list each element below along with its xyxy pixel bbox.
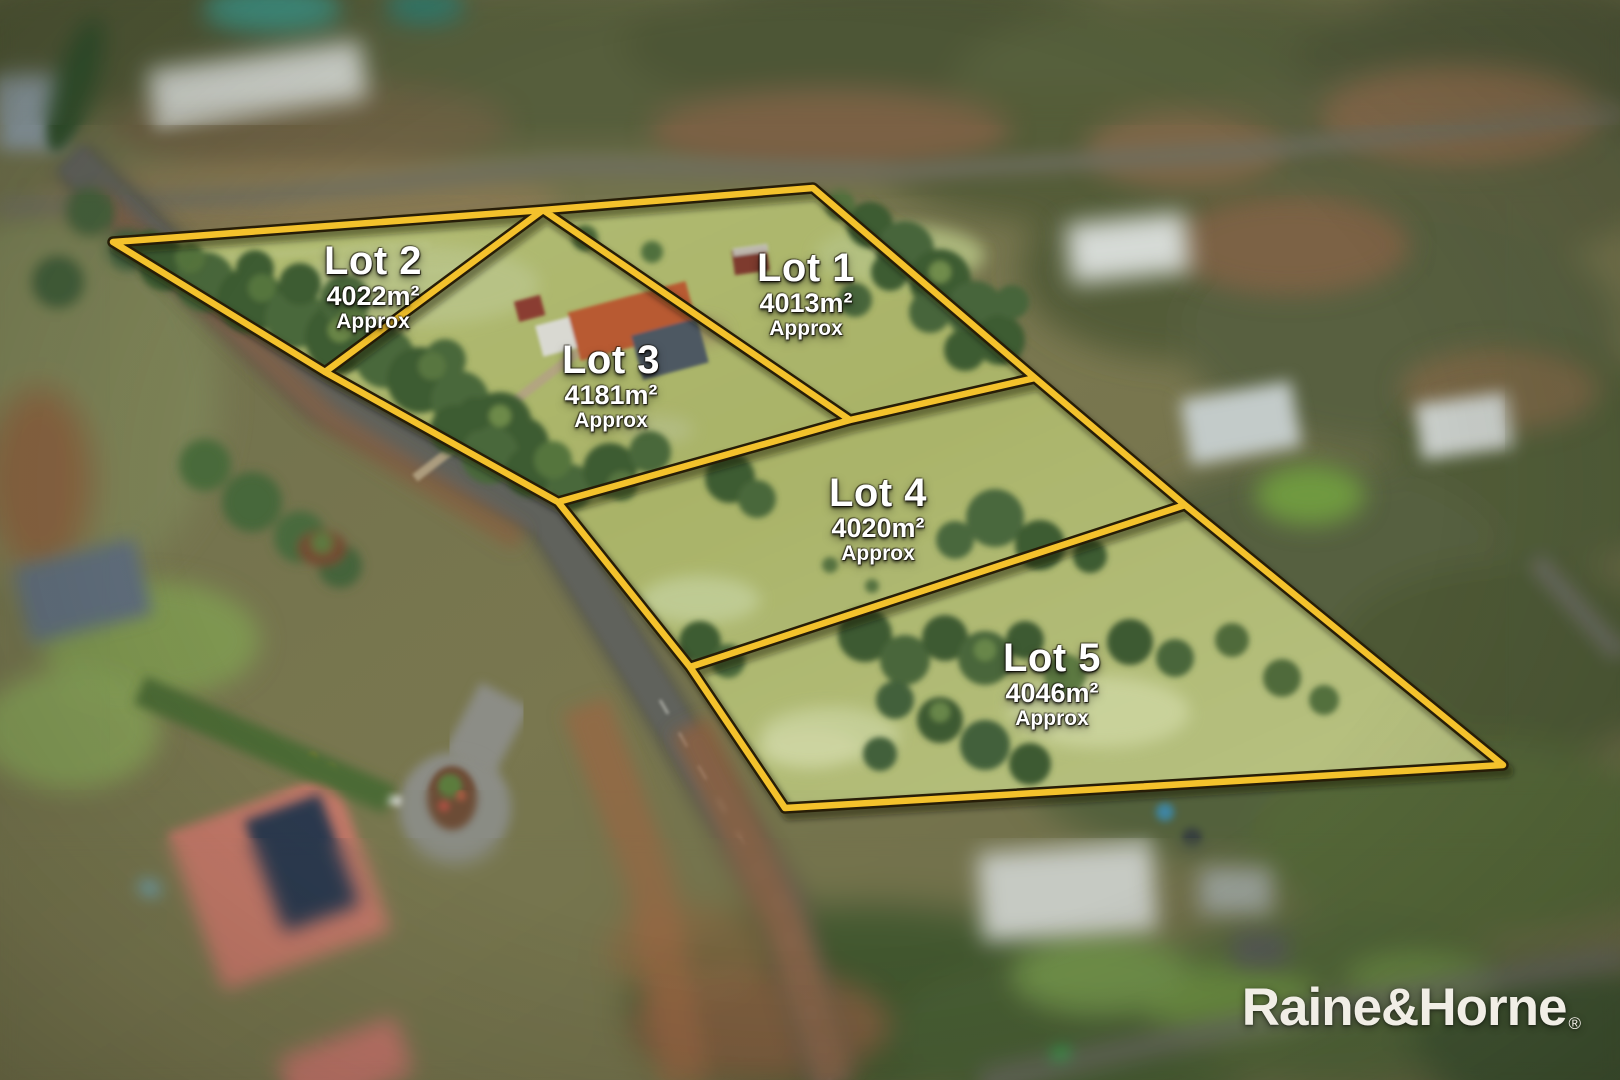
lot-5-qualifier: Approx [1003, 708, 1101, 730]
lot-2-qualifier: Approx [324, 311, 422, 333]
lot-3-area: 4181m² [562, 380, 660, 410]
lot-3-label: Lot 3 4181m² Approx [562, 340, 660, 432]
lot-3-qualifier: Approx [562, 410, 660, 432]
lot-2-name: Lot 2 [324, 241, 422, 281]
lot-5-name: Lot 5 [1003, 638, 1101, 678]
lot-1-area: 4013m² [757, 288, 855, 318]
aerial-subdivision-photo: Lot 1 4013m² Approx Lot 2 4022m² Approx … [0, 0, 1620, 1080]
registered-trademark-icon: ® [1568, 1014, 1580, 1033]
lot-1-qualifier: Approx [757, 318, 855, 340]
lot-5-label: Lot 5 4046m² Approx [1003, 638, 1101, 730]
lot-4-name: Lot 4 [829, 473, 927, 513]
lot-2-area: 4022m² [324, 281, 422, 311]
lot-4-label: Lot 4 4020m² Approx [829, 473, 927, 565]
lot-2-label: Lot 2 4022m² Approx [324, 241, 422, 333]
lot-1-name: Lot 1 [757, 248, 855, 288]
lot-3-name: Lot 3 [562, 340, 660, 380]
lot-5-area: 4046m² [1003, 678, 1101, 708]
lot-boundary-overlay [0, 0, 1620, 1080]
lot-4-qualifier: Approx [829, 543, 927, 565]
lot-1-label: Lot 1 4013m² Approx [757, 248, 855, 340]
lot-4-area: 4020m² [829, 513, 927, 543]
agency-logo-text: Raine&Horne [1242, 978, 1567, 1037]
agency-logo: Raine&Horne® [1242, 977, 1580, 1038]
